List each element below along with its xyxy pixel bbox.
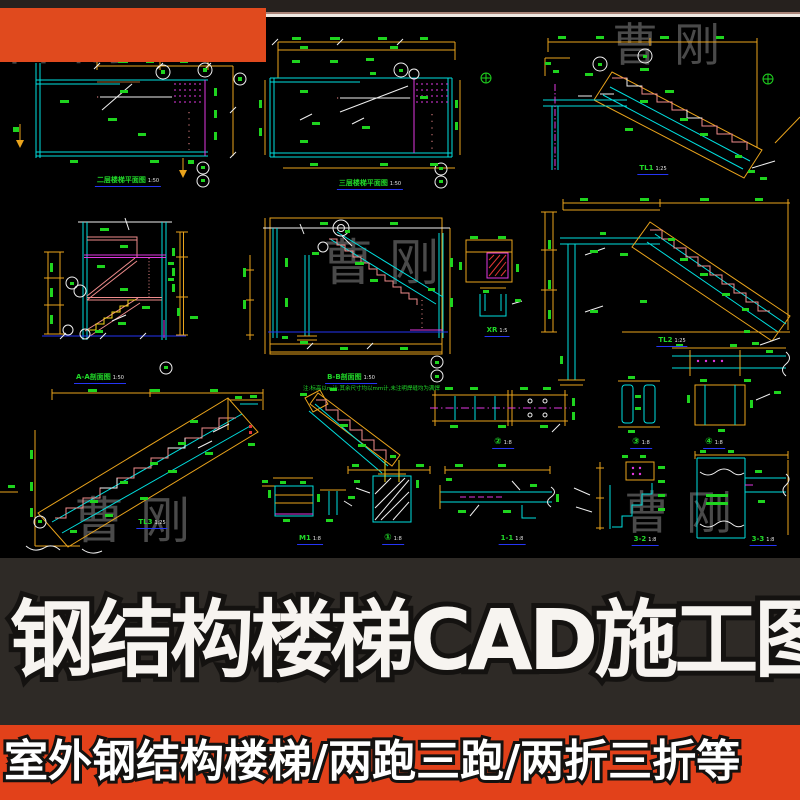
drawing-plan-2: [259, 37, 491, 188]
drawing-label-sec-a: A-A剖面图1:50: [74, 373, 126, 384]
drawing-label-sec-b: B-B剖面图1:50: [325, 373, 377, 384]
detail-tee: [320, 490, 355, 522]
drawing-elevation-tl3: [0, 389, 263, 553]
drawing-elevation-tl2: [541, 198, 790, 385]
drawing-label-plan2: 三层楼梯平面图1:50: [337, 179, 403, 190]
general-note: 注:标高以m计,其余尺寸均以mm计,未注明焊缝均为满焊: [303, 384, 440, 392]
drawing-plan-1: [13, 60, 246, 187]
poster-subtitle: 室外钢结构楼梯/两跑三跑/两折三折等 室外钢结构楼梯/两跑三跑/两折三折等: [4, 739, 798, 785]
poster-title: 钢结构楼梯CAD施工图 钢结构楼梯CAD施工图: [10, 593, 800, 687]
detail-1-1: [440, 464, 559, 518]
drawing-label-d4: ④1:8: [703, 437, 725, 449]
corner-badge: [0, 8, 266, 62]
drawing-label-plan1: 二层楼梯平面图1:50: [95, 176, 161, 187]
drawing-label-1-1: 1-11:8: [499, 534, 526, 545]
detail-3-2: [574, 455, 665, 530]
drawing-label-d1: ①1:8: [382, 533, 404, 545]
detail-3-3: [695, 450, 789, 538]
drawing-label-tl2: TL21:25: [656, 336, 687, 347]
cad-sheet: 曹刚 曹刚 曹刚 曹刚 曹刚: [0, 0, 800, 558]
poster-title-text: 钢结构楼梯CAD施工图: [10, 591, 800, 689]
drawing-label-d3: ③1:8: [630, 437, 652, 449]
drawing-label-d2: ②1:8: [492, 437, 514, 449]
detail-beam-splice: [430, 387, 575, 432]
detail-bracket: [672, 344, 790, 432]
drawing-label-3-2: 3-21:8: [632, 535, 659, 546]
drawing-section-bb: [243, 218, 453, 382]
drawing-label-m1: M11:8: [297, 534, 323, 545]
drawing-label-3-3: 3-31:8: [750, 535, 777, 546]
poster-subtitle-text: 室外钢结构楼梯/两跑三跑/两折三折等: [4, 736, 740, 787]
drawing-section-aa: [42, 218, 198, 374]
drawing-label-tl1: TL11:25: [637, 164, 668, 175]
detail-m1: [262, 478, 320, 522]
drawing-label-tl3: TL31:25: [136, 518, 167, 529]
drawing-label-xr: XR1:5: [485, 326, 510, 337]
detail-hatched-plate: [459, 236, 519, 282]
detail-channel-xr: [480, 288, 522, 316]
detail-pipe-columns: [618, 376, 660, 433]
product-poster: 曹刚 曹刚 曹刚 曹刚 曹刚: [0, 0, 800, 800]
drawing-elevation-tl1: [543, 36, 800, 180]
cad-drawings-canvas: [0, 0, 800, 558]
